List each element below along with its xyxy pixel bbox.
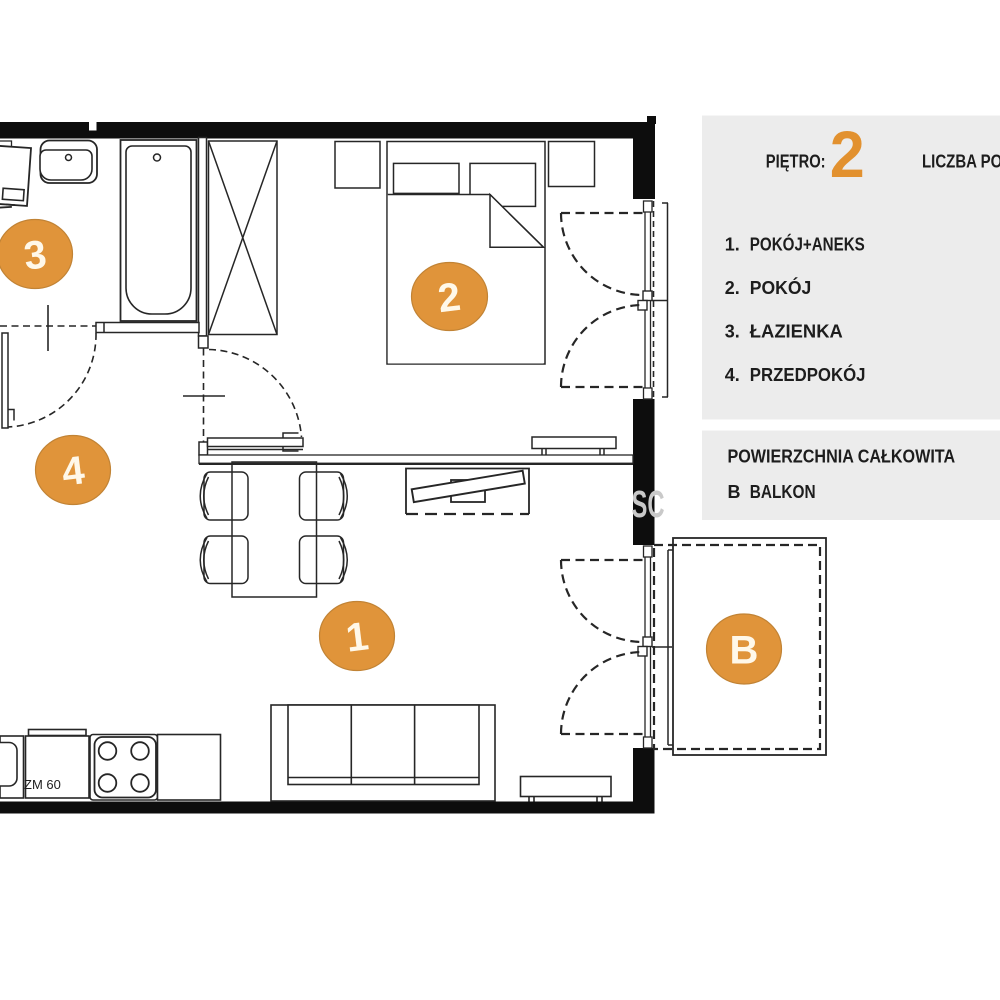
svg-text:POKÓJ: POKÓJ [750, 277, 812, 298]
svg-text:1.: 1. [725, 235, 740, 255]
svg-text:ZM 60: ZM 60 [24, 777, 61, 792]
svg-text:B: B [728, 482, 741, 502]
svg-text:3.: 3. [725, 322, 740, 342]
svg-text:4.: 4. [725, 365, 740, 385]
svg-text:LICZBA POKOI:: LICZBA POKOI: [922, 151, 1000, 171]
svg-text:SC: SC [632, 484, 665, 526]
svg-text:2.: 2. [725, 278, 740, 298]
svg-text:B: B [730, 629, 759, 673]
svg-text:2: 2 [830, 117, 865, 191]
svg-text:PIĘTRO:: PIĘTRO: [766, 151, 826, 171]
svg-text:ŁAZIENKA: ŁAZIENKA [750, 322, 843, 342]
svg-text:POKÓJ+ANEKS: POKÓJ+ANEKS [750, 234, 865, 255]
svg-text:POWIERZCHNIA CAŁKOWITA: POWIERZCHNIA CAŁKOWITA [728, 446, 956, 466]
svg-text:PRZEDPOKÓJ: PRZEDPOKÓJ [750, 364, 866, 385]
svg-text:BALKON: BALKON [750, 482, 816, 502]
